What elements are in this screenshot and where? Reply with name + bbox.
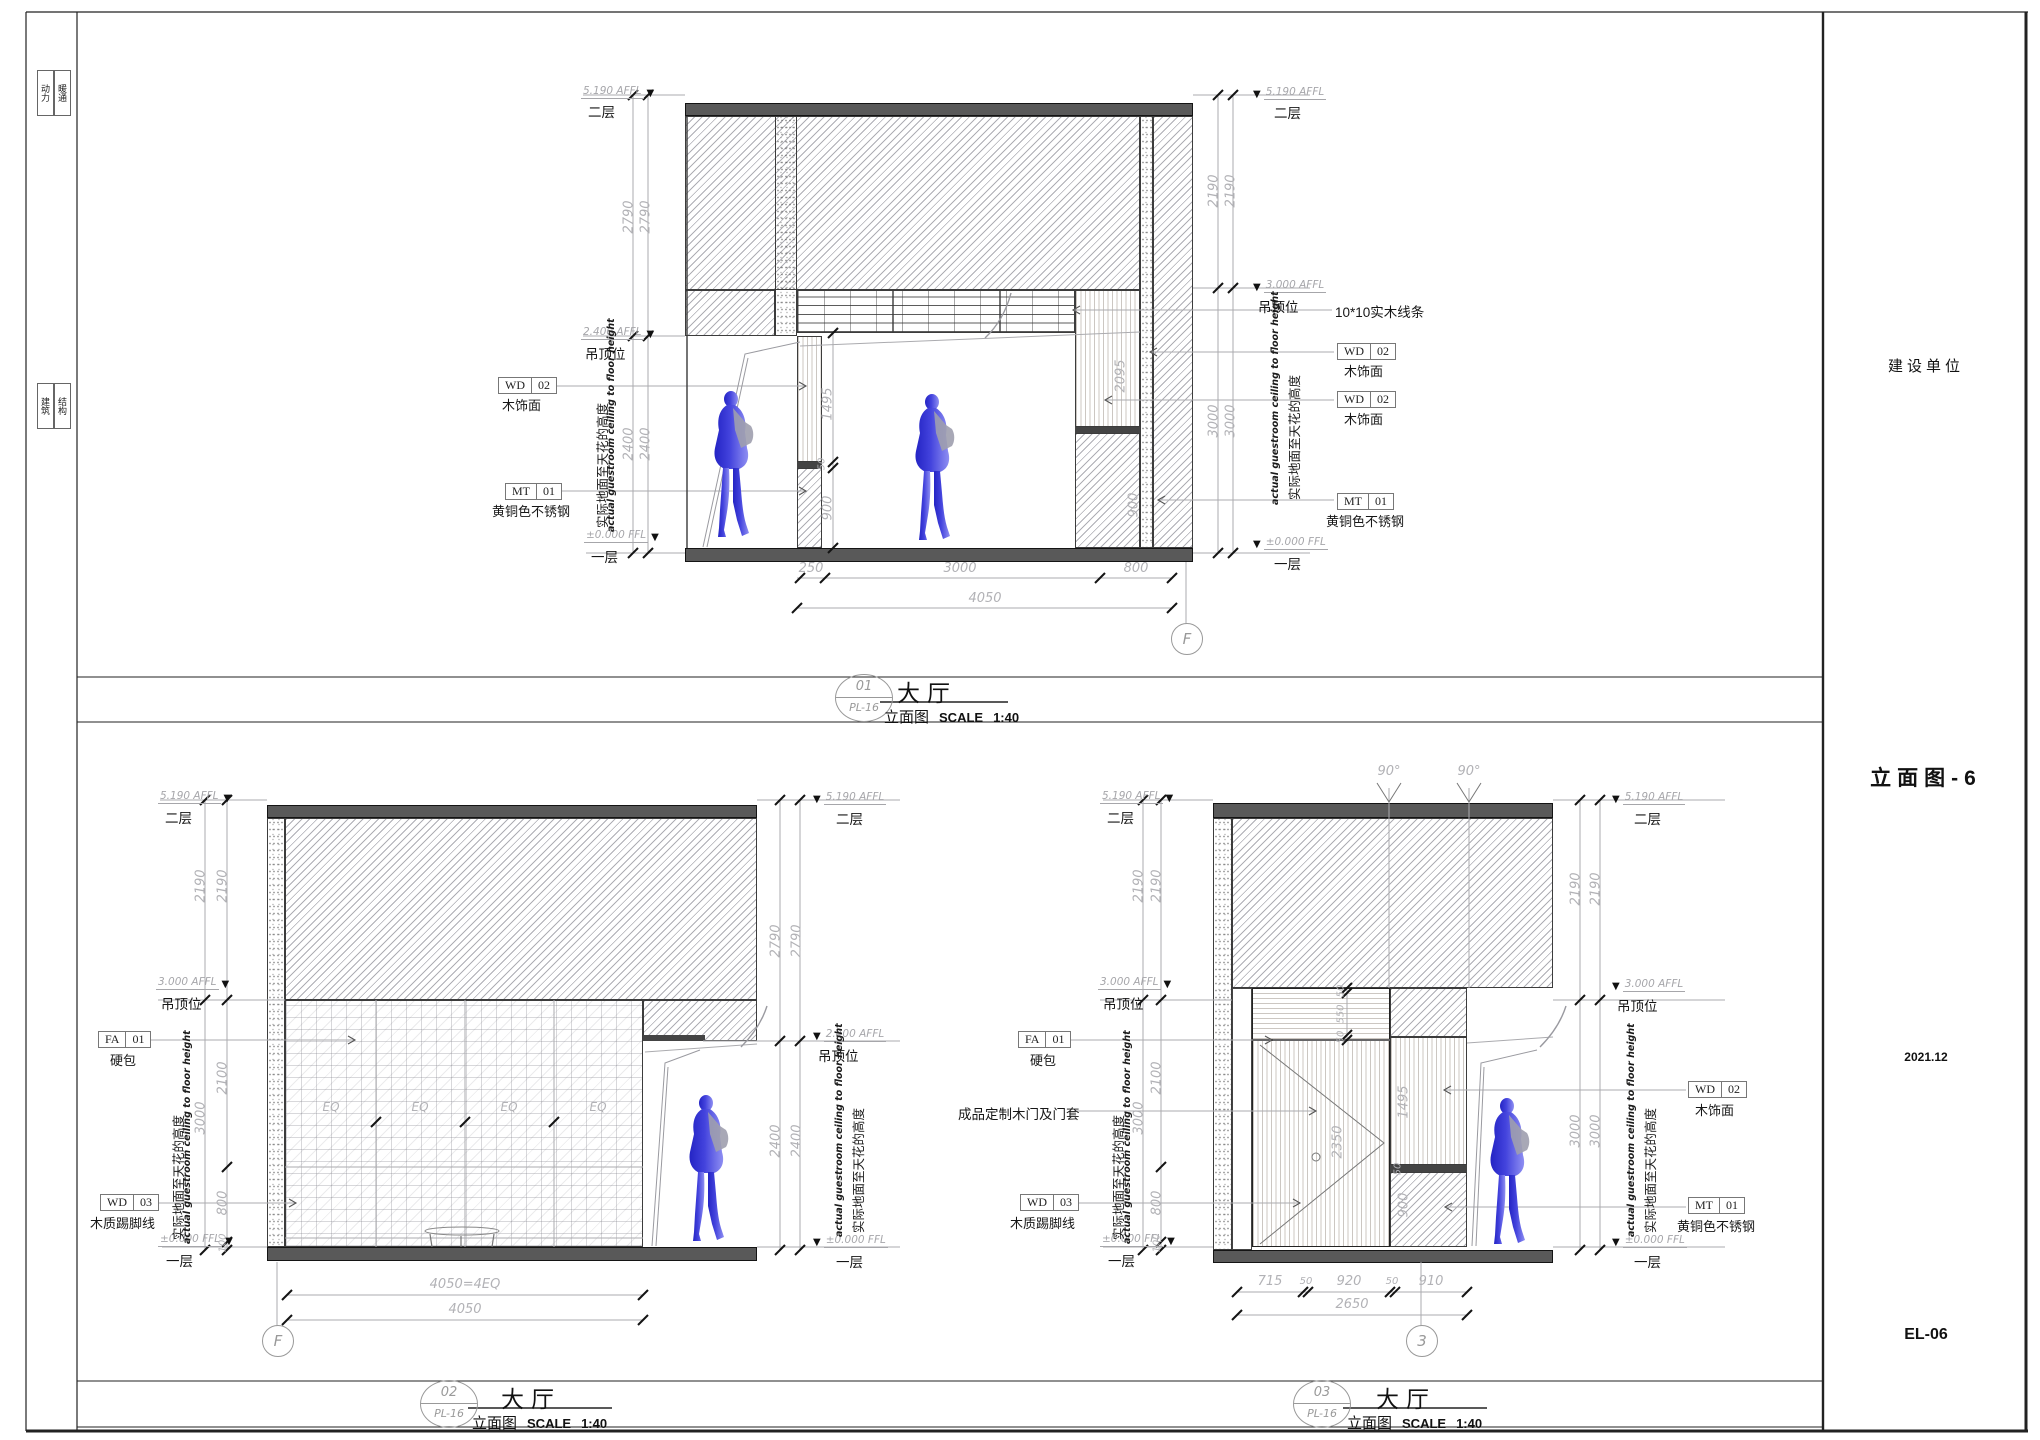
level-triangle-icon: ▼ <box>1612 981 1620 992</box>
dim: 2190 <box>1589 872 1604 905</box>
door-note: 成品定制木门及门套 <box>958 1103 1080 1123</box>
margin-discipline-label: 暖通 <box>54 70 71 116</box>
dim: 3000 <box>1569 1114 1584 1147</box>
margin-discipline-label: 结构 <box>54 383 71 429</box>
view-scale: 立面图SCALE1:40 <box>884 706 1019 727</box>
level-triangle-icon: ▼ <box>1612 794 1620 805</box>
level-name: 一层 <box>591 546 618 566</box>
level-triangle-icon: ▼ <box>651 532 659 543</box>
dim: 2400 <box>639 427 654 460</box>
level-name: 一层 <box>1634 1251 1661 1271</box>
level-marker: ▼5.190 AFFL <box>813 791 886 805</box>
dim: 2190 <box>1207 174 1222 207</box>
material-desc: 木质踢脚线 <box>1010 1213 1075 1232</box>
height-note-en: actual guestroom ceiling to floor height <box>1122 1030 1133 1244</box>
dim: 2790 <box>790 924 805 957</box>
dim: 1495 <box>1397 1085 1412 1118</box>
level-triangle-icon: ▼ <box>1167 1236 1175 1247</box>
dim: 2350 <box>1331 1125 1346 1158</box>
level-marker: ▼5.190 AFFL <box>1612 791 1685 805</box>
dim: 2400 <box>622 427 637 460</box>
angle-label: 90° <box>1457 764 1480 779</box>
person-silhouette <box>689 1095 728 1241</box>
level-marker: ▼2.400 AFFL <box>813 1028 886 1042</box>
material-tag-fa01: FA01 <box>98 1031 151 1048</box>
dim: 920 <box>1337 1274 1362 1289</box>
level-name: 二层 <box>1274 102 1301 122</box>
eq-label: EQ <box>322 1100 339 1114</box>
height-note-cn: 实际地面至天花的高度 <box>848 1108 867 1233</box>
level-marker: 3.000 AFFL▼ <box>1098 976 1171 990</box>
eq-label: EQ <box>589 1100 606 1114</box>
dim: 2790 <box>769 924 784 957</box>
dim: 800 <box>1150 1191 1165 1216</box>
dim: 100 <box>218 1233 229 1252</box>
dim: 2100 <box>1150 1061 1165 1094</box>
person-silhouette <box>1490 1098 1529 1244</box>
level-triangle-icon: ▼ <box>224 793 232 804</box>
level-name: 吊顶位 <box>161 993 202 1013</box>
material-tag-wd02: WD02 <box>498 377 557 394</box>
level-marker: ±0.000 FFL▼ <box>584 529 659 543</box>
person-silhouette <box>915 394 954 540</box>
dim: 2190 <box>194 869 209 902</box>
angle-label: 90° <box>1377 764 1400 779</box>
grid-bubble: F <box>262 1325 294 1357</box>
level-triangle-icon: ▼ <box>1164 979 1172 990</box>
level-name: 二层 <box>836 808 863 828</box>
dim: 2790 <box>639 200 654 233</box>
level-name: 一层 <box>1108 1250 1135 1270</box>
trim-note: 10*10实木线条 <box>1335 301 1424 321</box>
height-note-en: actual guestroom ceiling to floor height <box>1270 291 1281 505</box>
dim: 50 <box>1393 1163 1404 1176</box>
dim: 1495 <box>821 387 836 420</box>
dim: 50 <box>1336 1031 1347 1044</box>
dim: 2400 <box>769 1124 784 1157</box>
dim: 3000 <box>1224 404 1239 437</box>
level-name: 一层 <box>1274 553 1301 573</box>
dim: 3000 <box>1132 1101 1147 1134</box>
level-triangle-icon: ▼ <box>1612 1237 1620 1248</box>
level-name: 二层 <box>1107 807 1134 827</box>
dim-total: 4050 <box>968 591 1001 606</box>
level-triangle-icon: ▼ <box>1253 89 1261 100</box>
eq-label: EQ <box>411 1100 428 1114</box>
table-silhouette <box>425 1227 499 1235</box>
height-note-cn: 实际地面至天花的高度 <box>1284 375 1303 500</box>
drawing-sheet: 5.190 AFFL▼ 二层 2.400 AFFL▼ 吊顶位 ±0.000 FF… <box>0 0 2040 1440</box>
person-silhouette <box>714 391 753 537</box>
material-desc: 木质踢脚线 <box>90 1213 155 1232</box>
level-marker: 5.190 AFFL▼ <box>581 85 654 99</box>
level-marker: 2.400 AFFL▼ <box>581 326 654 340</box>
material-tag-wd02: WD02 <box>1337 343 1396 360</box>
material-desc: 黄铜色不锈钢 <box>1326 511 1404 530</box>
dim: 2190 <box>1569 872 1584 905</box>
level-name: 一层 <box>836 1251 863 1271</box>
height-note-en: actual guestroom ceiling to floor height <box>834 1023 845 1237</box>
level-triangle-icon: ▼ <box>222 979 230 990</box>
dim: 550 <box>1336 1004 1347 1023</box>
dim: 50 <box>1386 1276 1399 1287</box>
dim: 900 <box>1127 493 1142 518</box>
dim: 50 <box>817 458 828 471</box>
view-bubble: 02PL-16 <box>420 1380 478 1428</box>
dim: 800 <box>216 1191 231 1216</box>
titleblock-date: 2021.12 <box>1904 1050 1947 1064</box>
height-note-en: actual guestroom ceiling to floor height <box>606 318 617 532</box>
dim: 715 <box>1258 1274 1283 1289</box>
level-triangle-icon: ▼ <box>1253 282 1261 293</box>
material-tag-wd03: WD03 <box>100 1194 159 1211</box>
level-marker: ▼±0.000 FFL <box>1253 536 1328 550</box>
dim: 50 <box>1336 985 1347 998</box>
level-triangle-icon: ▼ <box>813 1031 821 1042</box>
grid-bubble: 3 <box>1406 1325 1438 1357</box>
level-marker: ▼5.190 AFFL <box>1253 86 1326 100</box>
dim: 3000 <box>1207 404 1222 437</box>
level-marker: ▼±0.000 FFL <box>813 1234 888 1248</box>
dim: 900 <box>1397 1193 1412 1218</box>
material-desc: 木饰面 <box>502 395 541 414</box>
material-tag-fa01: FA01 <box>1018 1031 1071 1048</box>
level-triangle-icon: ▼ <box>1166 793 1174 804</box>
material-desc: 黄铜色不锈钢 <box>1677 1216 1755 1235</box>
view-title: 大厅 <box>501 1380 561 1414</box>
dim: 2190 <box>1150 869 1165 902</box>
titleblock-client-label: 建设单位 <box>1888 355 1964 376</box>
dim: 2190 <box>1224 174 1239 207</box>
margin-discipline-label: 动力 <box>37 70 54 116</box>
height-note-en: actual guestroom ceiling to floor height <box>182 1030 193 1244</box>
dim: 800 <box>1124 561 1149 576</box>
level-marker: ▼3.000 AFFL <box>1253 279 1326 293</box>
material-tag-mt01: MT01 <box>1688 1197 1745 1214</box>
view-scale: 立面图SCALE1:40 <box>472 1412 607 1433</box>
material-desc: 木饰面 <box>1344 361 1383 380</box>
dim: 2790 <box>622 200 637 233</box>
view-bubble: 03PL-16 <box>1293 1380 1351 1428</box>
height-note-cn: 实际地面至天花的高度 <box>1640 1108 1659 1233</box>
eq-label: EQ <box>500 1100 517 1114</box>
level-marker: 5.190 AFFL▼ <box>1100 790 1173 804</box>
dim-total: 4050=4EQ <box>430 1277 501 1292</box>
height-note-en: actual guestroom ceiling to floor height <box>1626 1023 1637 1237</box>
material-desc: 木饰面 <box>1344 409 1383 428</box>
dim: 100 <box>1152 1233 1163 1252</box>
level-name: 一层 <box>166 1250 193 1270</box>
dim: 2190 <box>216 869 231 902</box>
dim-total: 2650 <box>1335 1297 1368 1312</box>
view-title: 大厅 <box>897 674 957 708</box>
dim: 900 <box>821 496 836 521</box>
level-triangle-icon: ▼ <box>813 794 821 805</box>
dim: 250 <box>799 561 824 576</box>
level-value: 5.190 AFFL <box>581 85 644 99</box>
dim: 3000 <box>943 561 976 576</box>
dim: 3000 <box>194 1101 209 1134</box>
material-desc: 硬包 <box>1030 1050 1056 1069</box>
titleblock-sheet-number: EL-06 <box>1904 1326 1948 1344</box>
level-marker: 3.000 AFFL▼ <box>156 976 229 990</box>
grid-bubble: F <box>1171 623 1203 655</box>
dim: 2400 <box>790 1124 805 1157</box>
dim: 2100 <box>216 1061 231 1094</box>
level-triangle-icon: ▼ <box>813 1237 821 1248</box>
level-triangle-icon: ▼ <box>647 329 655 340</box>
level-name: 二层 <box>1634 808 1661 828</box>
dim: 910 <box>1419 1274 1444 1289</box>
dim: 3000 <box>1589 1114 1604 1147</box>
titleblock-sheet-name: 立面图-6 <box>1870 762 1982 792</box>
level-marker: 5.190 AFFL▼ <box>158 790 231 804</box>
view-title: 大厅 <box>1376 1380 1436 1414</box>
level-name: 吊顶位 <box>1617 995 1658 1015</box>
level-name: 吊顶位 <box>1103 993 1144 1013</box>
material-tag-wd03: WD03 <box>1020 1194 1079 1211</box>
margin-discipline-label: 建筑 <box>37 383 54 429</box>
dim: 2190 <box>1132 869 1147 902</box>
material-tag-wd02: WD02 <box>1337 391 1396 408</box>
view-scale: 立面图SCALE1:40 <box>1347 1412 1482 1433</box>
level-marker: ▼3.000 AFFL <box>1612 978 1685 992</box>
dim: 2095 <box>1114 359 1129 392</box>
level-triangle-icon: ▼ <box>647 88 655 99</box>
dim: 50 <box>1300 1276 1313 1287</box>
material-tag-mt01: MT01 <box>505 483 562 500</box>
level-name: 二层 <box>165 807 192 827</box>
level-marker: ▼±0.000 FFL <box>1612 1234 1687 1248</box>
material-desc: 木饰面 <box>1695 1100 1734 1119</box>
material-desc: 硬包 <box>110 1050 136 1069</box>
level-triangle-icon: ▼ <box>1253 539 1261 550</box>
material-desc: 黄铜色不锈钢 <box>492 501 570 520</box>
material-tag-mt01: MT01 <box>1337 493 1394 510</box>
level-name: 二层 <box>588 101 615 121</box>
dim-total: 4050 <box>448 1302 481 1317</box>
material-tag-wd02: WD02 <box>1688 1081 1747 1098</box>
